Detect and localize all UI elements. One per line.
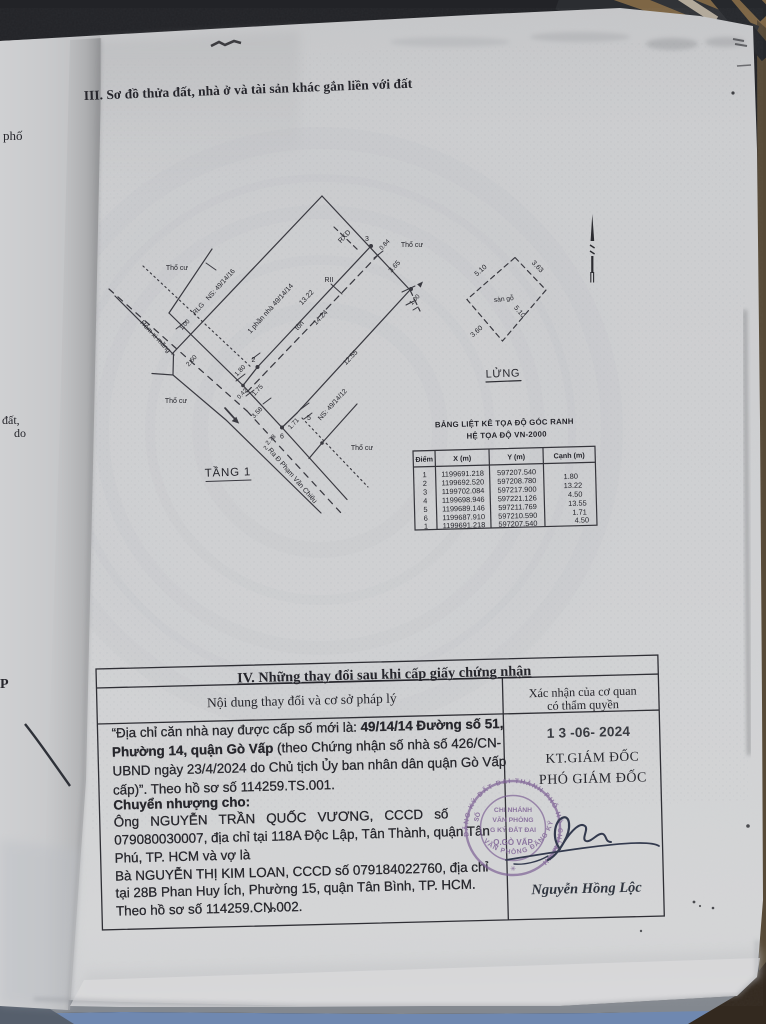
svg-text:6: 6 [280,434,284,441]
svg-text:Thổ cư: Thổ cư [165,397,188,405]
svg-text:2: 2 [252,357,256,364]
svg-text:1 3 -06- 2024: 1 3 -06- 2024 [547,724,631,741]
svg-text:4.50: 4.50 [575,515,590,524]
svg-text:RII: RII [325,277,334,284]
svg-text:13.55: 13.55 [568,498,587,507]
svg-text:TẦNG 1: TẦNG 1 [204,465,251,480]
svg-text:Cạnh (m): Cạnh (m) [553,450,585,460]
svg-text:3: 3 [365,236,369,243]
svg-text:13.22: 13.22 [564,481,583,490]
svg-text:X (m): X (m) [453,453,472,462]
svg-text:do: do [14,426,26,440]
svg-text:1199691.218: 1199691.218 [443,520,486,530]
svg-text:1: 1 [424,522,428,531]
svg-text:Thổ cư: Thổ cư [351,444,374,452]
svg-text:4.50: 4.50 [568,490,583,499]
svg-text:có thẩm quyền: có thẩm quyền [547,697,619,713]
svg-text:5: 5 [307,415,311,422]
svg-text:P: P [0,677,9,692]
svg-text:CHI NHÁNH: CHI NHÁNH [494,805,532,814]
svg-text:phố: phố [3,128,23,143]
svg-text:Y (m): Y (m) [507,452,526,461]
svg-text:Thổ cư: Thổ cư [401,241,424,249]
svg-text:Nguyễn Hồng Lộc: Nguyễn Hồng Lộc [530,880,642,899]
svg-text:đất,: đất, [2,413,20,427]
svg-text:✳: ✳ [510,865,516,873]
svg-text:597207.540: 597207.540 [498,519,537,529]
svg-text:LỬNG: LỬNG [485,366,520,380]
svg-text:Thổ cư: Thổ cư [166,264,189,272]
svg-text:KT.GIÁM ĐỐC: KT.GIÁM ĐỐC [545,749,639,766]
svg-text:Điểm: Điểm [415,454,433,463]
svg-text:1.80: 1.80 [563,472,578,481]
svg-text:Q.GÒ VẤP: Q.GÒ VẤP [493,837,533,847]
svg-text:VĂN PHÒNG: VĂN PHÒNG [492,815,533,824]
